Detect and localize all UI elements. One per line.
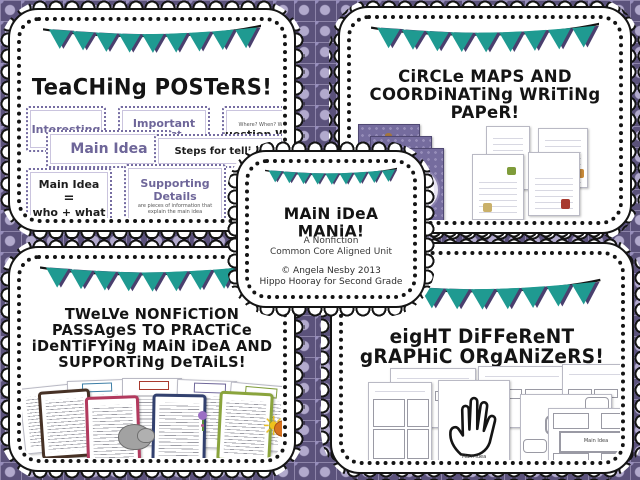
mini-poster-label: Main Idea: [70, 141, 147, 157]
organizer-cell: [373, 399, 405, 427]
card-title-line: PAPeR!: [352, 104, 618, 123]
header-cell: [139, 381, 169, 390]
text-lines: [224, 400, 267, 456]
bunting-banner-icon: [371, 20, 600, 55]
bunting-banner-icon: [43, 22, 261, 55]
writing-paper-thumbnail: [472, 154, 524, 220]
bubble-node: [523, 439, 547, 453]
mini-poster-label: Supporting: [140, 177, 209, 190]
card-title-line: TWeLVe NONFiCTiON: [22, 308, 282, 324]
organizer-cell: [553, 453, 589, 460]
ruled-lines: [569, 369, 620, 379]
mini-poster-label: Important: [133, 117, 195, 130]
product-cover: TeaCHiNg POSTeRS! Interesting Important …: [0, 0, 640, 480]
clipart-dot: [507, 167, 516, 175]
flower-clipart-icon: [202, 418, 204, 431]
organizer-center-grid-thumbnail: Main Idea: [548, 408, 620, 460]
bunting-banner-icon: [265, 166, 398, 186]
mini-poster-main-idea-equation: Main Idea = who + what: [26, 168, 112, 218]
unit-title: MAiN iDeA MANiA!: [250, 205, 412, 240]
hand-organizer-thumbnail: Main Idea: [438, 380, 510, 460]
mini-poster-tiny-text: are pieces of information that explain t…: [136, 203, 214, 215]
hippo-clipart-icon: [118, 424, 152, 450]
card-title-line: COORDiNATiNg WRiTiNg: [352, 86, 618, 105]
organizer-cell: [407, 399, 429, 427]
organizer-grid-thumbnail: [368, 382, 432, 460]
mini-poster-supporting-details: Supporting Details are pieces of informa…: [124, 164, 226, 218]
author-line: Hippo Hooray for Second Grade: [250, 277, 412, 287]
card-title-line: SUPPORTiNg DeTAiLS!: [22, 356, 282, 372]
organizer-cell: [601, 413, 620, 429]
passage-card-navy: [151, 394, 206, 458]
organizer-cell: [553, 413, 589, 429]
ruled-lines: [375, 386, 425, 394]
clipart-dot: [561, 199, 570, 209]
organizer-center-cell: Main Idea: [559, 431, 620, 453]
text-lines: [159, 403, 200, 458]
hand-outline-icon: [444, 385, 504, 457]
card-title-line: PASSAgeS TO PRACTiCe: [22, 324, 282, 340]
mini-poster-label: Main Idea: [39, 178, 100, 191]
card-title-line: iDeNTiFYiNg MAiN iDeA AND: [22, 340, 282, 356]
mini-poster-label: =: [64, 191, 75, 206]
mini-poster-label: who + what: [32, 206, 105, 219]
card-main-idea-mania: MAiN iDeA MANiA! A Nonfiction Common Cor…: [236, 150, 426, 308]
mini-poster-label: Details: [153, 190, 196, 203]
copyright-line: © Angela Nesby 2013: [250, 266, 412, 276]
text-lines: [45, 398, 87, 453]
card-title: TeaCHiNg POSTeRS!: [22, 76, 282, 100]
organizer-cell: [601, 453, 620, 460]
unit-subtitle-line: A Nonfiction: [250, 236, 412, 246]
thumbnails-area: Main Idea Main Idea Main Idea: [344, 372, 620, 460]
hand-label: Main Idea: [439, 454, 509, 460]
thumbnails-area: ☀: [22, 380, 282, 458]
organizer-cell: [373, 429, 405, 459]
unit-subtitle-line: Common Core Aligned Unit: [250, 247, 412, 257]
card-title-line: eigHT DiFFeReNT: [344, 328, 620, 349]
writing-paper-thumbnail: [528, 152, 580, 216]
organizer-cell: [407, 429, 429, 459]
clipart-dot: [483, 203, 492, 212]
organizer-center-label: Main Idea: [561, 439, 620, 444]
card-title-line: CiRCLe MAPS AND: [352, 68, 618, 87]
